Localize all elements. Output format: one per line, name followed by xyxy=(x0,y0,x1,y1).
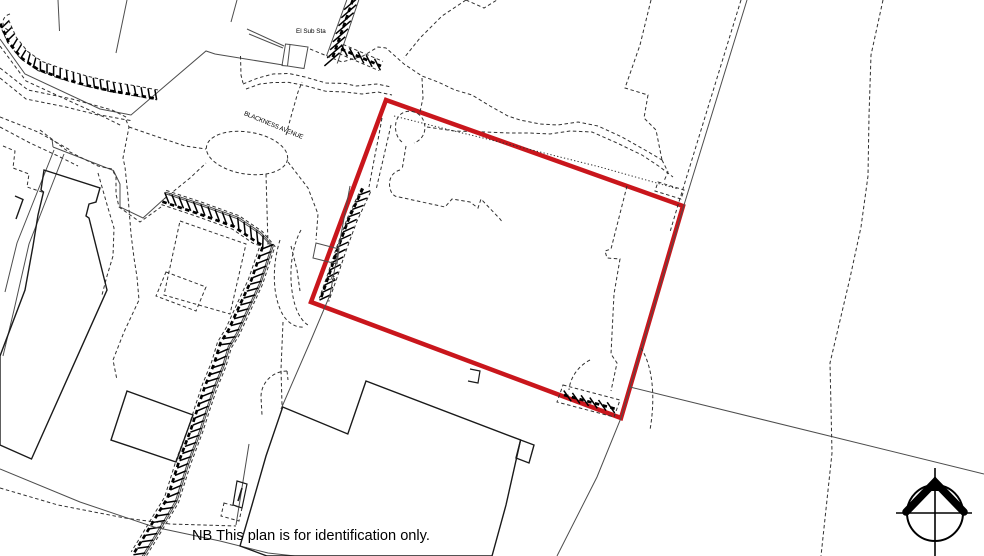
svg-text:NB This plan is for identifica: NB This plan is for identification only. xyxy=(192,528,430,544)
svg-text:El Sub Sta: El Sub Sta xyxy=(296,28,326,35)
svg-text:CG: CG xyxy=(327,276,335,282)
